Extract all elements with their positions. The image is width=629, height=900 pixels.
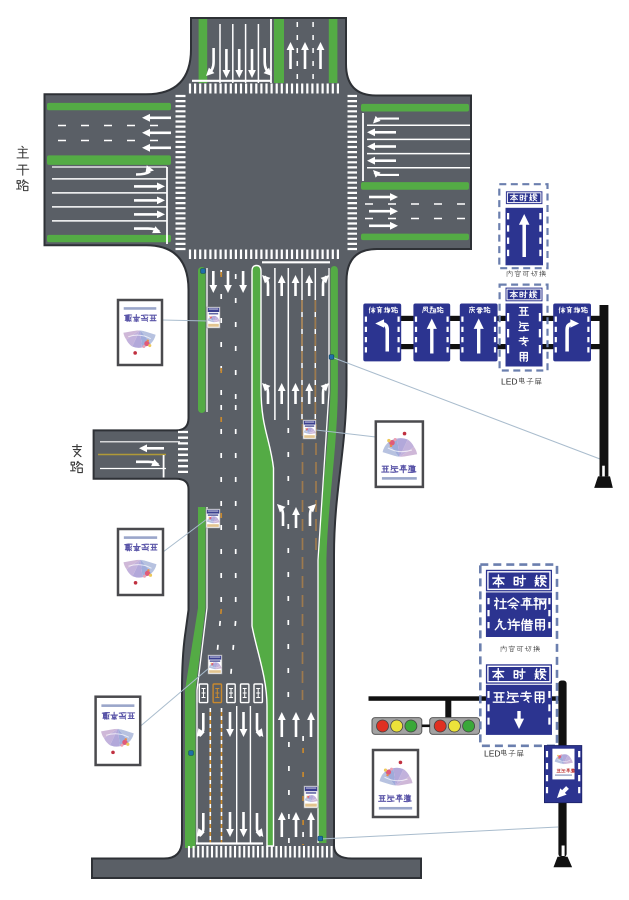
svg-text:LED: LED [501,377,518,387]
svg-text:LED: LED [484,749,501,759]
